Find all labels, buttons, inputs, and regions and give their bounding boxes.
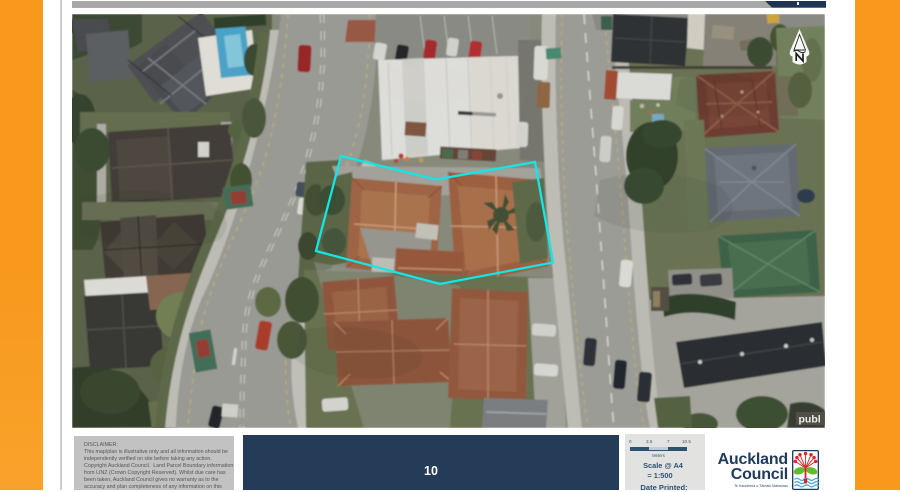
svg-text:publ: publ (799, 414, 821, 426)
